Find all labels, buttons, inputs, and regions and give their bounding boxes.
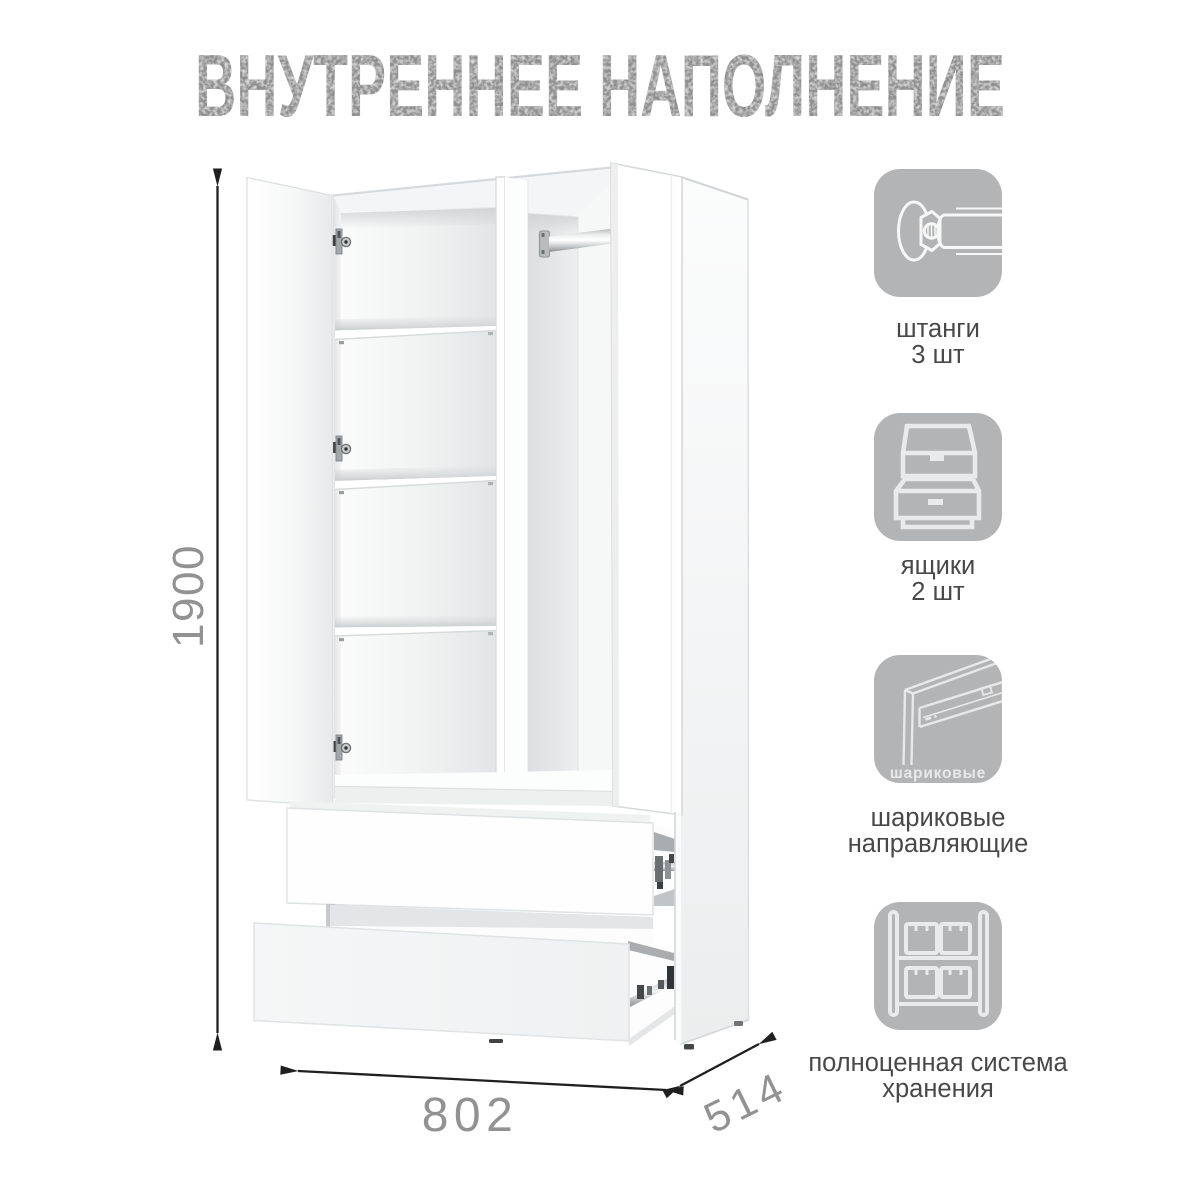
svg-text:полноценная система: полноценная система (808, 1049, 1068, 1077)
svg-text:направляющие: направляющие (848, 830, 1029, 858)
svg-text:шариковые: шариковые (890, 765, 986, 782)
svg-text:ВНУТРЕННЕЕ НАПОЛНЕНИЕ: ВНУТРЕННЕЕ НАПОЛНЕНИЕ (195, 36, 1005, 135)
svg-text:шариковые: шариковые (871, 804, 1006, 832)
svg-text:802: 802 (422, 1089, 519, 1142)
svg-text:1900: 1900 (164, 544, 213, 648)
svg-text:2 шт: 2 шт (911, 578, 965, 606)
svg-text:3 шт: 3 шт (911, 341, 965, 369)
svg-text:ящики: ящики (901, 552, 975, 580)
svg-text:хранения: хранения (882, 1075, 994, 1103)
svg-text:штанги: штанги (896, 315, 980, 343)
